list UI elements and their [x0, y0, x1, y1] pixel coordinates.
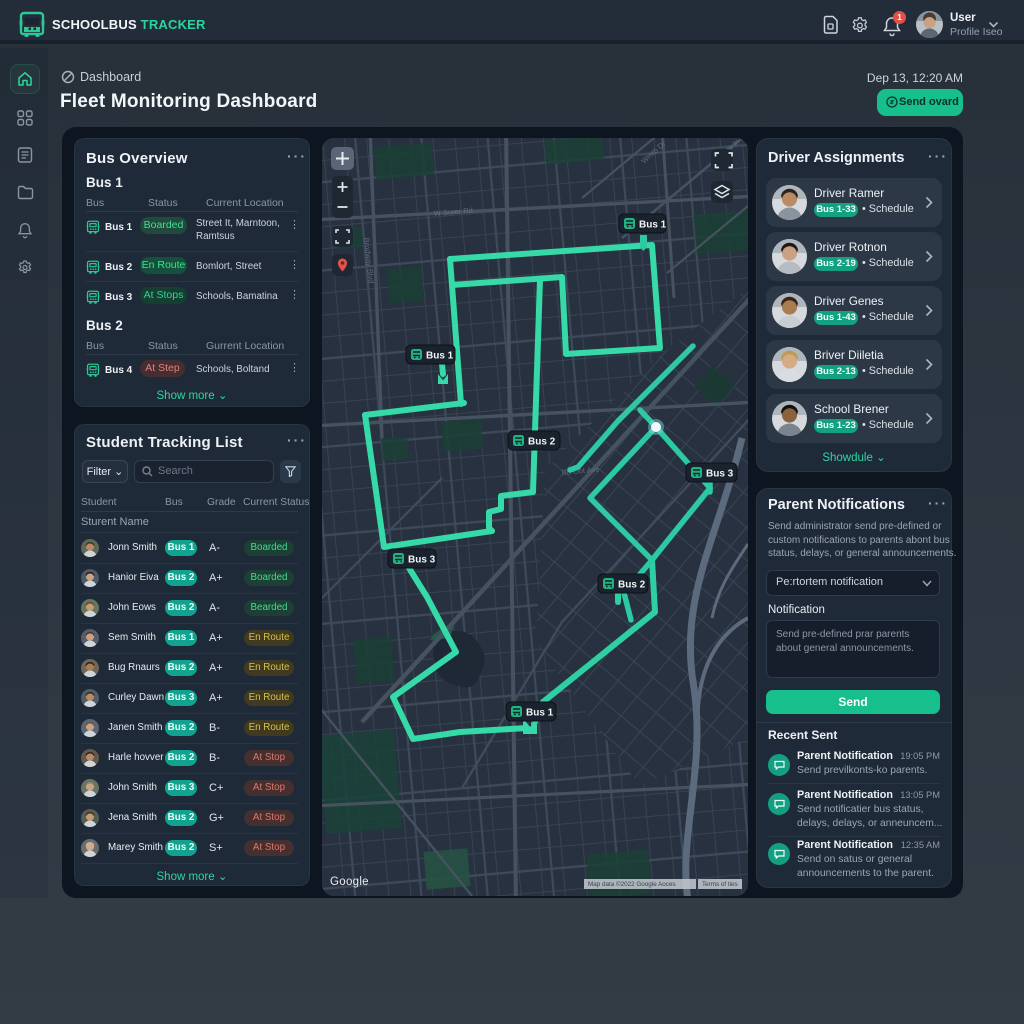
svg-text:Bus 3: Bus 3	[408, 555, 436, 566]
svg-text:Terms of ties: Terms of ties	[702, 881, 738, 888]
svg-text:Bus 3: Bus 3	[706, 469, 734, 480]
svg-text:Bus 1: Bus 1	[526, 708, 554, 719]
svg-text:Bus 2: Bus 2	[618, 580, 646, 591]
svg-text:Bus 1: Bus 1	[426, 351, 454, 362]
svg-text:Google: Google	[330, 876, 369, 888]
svg-text:Bus 2: Bus 2	[528, 437, 556, 448]
svg-text:Map data ©2022 Google Aoces: Map data ©2022 Google Aoces	[588, 880, 676, 888]
svg-text:Bus 1: Bus 1	[639, 220, 667, 231]
